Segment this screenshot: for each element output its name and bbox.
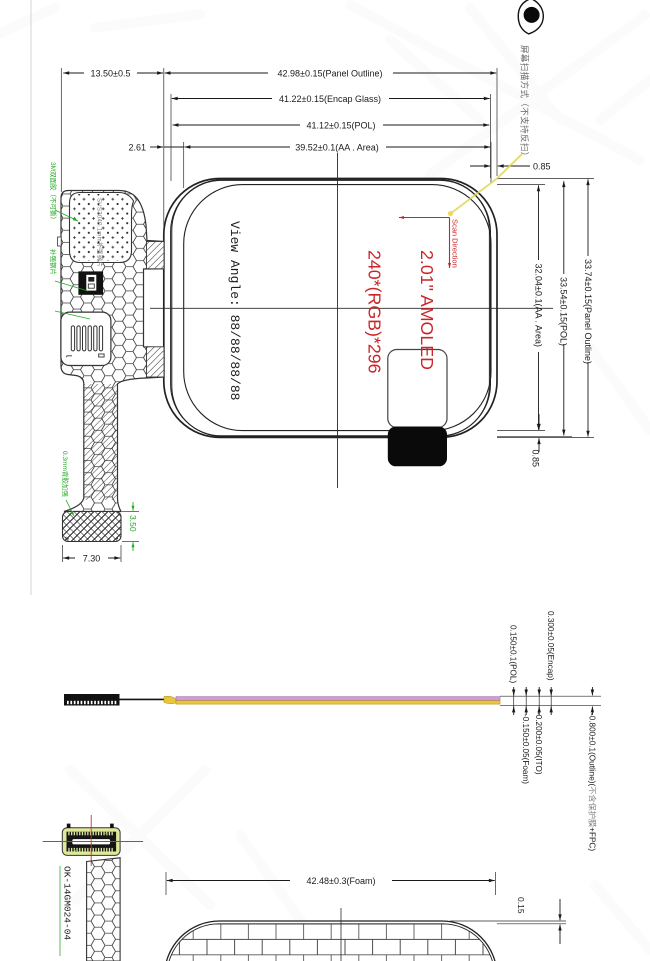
- svg-text:Scan Direction: Scan Direction: [451, 219, 460, 268]
- svg-text:屏幕扫描方式（不支持反扫）: 屏幕扫描方式（不支持反扫）: [520, 45, 530, 161]
- svg-text:0.300±0.05(Encap): 0.300±0.05(Encap): [546, 611, 555, 681]
- svg-text:SUS3040.1mm补强钢片: SUS3040.1mm补强钢片: [96, 198, 104, 267]
- svg-text:-0.150±0.05(Foam): -0.150±0.05(Foam): [521, 714, 530, 784]
- svg-text:View Angle: 88/88/88/88: View Angle: 88/88/88/88: [227, 221, 242, 400]
- svg-text:240*(RGB)*296: 240*(RGB)*296: [365, 250, 385, 374]
- svg-text:33.74±0.15(Panel Outline): 33.74±0.15(Panel Outline): [583, 259, 593, 364]
- svg-text:2.01" AMOLED: 2.01" AMOLED: [417, 250, 437, 370]
- svg-text:3M双面胶（不可撕）: 3M双面胶（不可撕）: [49, 162, 58, 223]
- svg-text:42.98±0.15(Panel Outline): 42.98±0.15(Panel Outline): [277, 69, 382, 79]
- svg-text:33.54±0.15(POL): 33.54±0.15(POL): [559, 277, 569, 346]
- svg-text:32.04±0.1(AA . Area): 32.04±0.1(AA . Area): [533, 264, 543, 348]
- svg-text:41.12±0.15(POL): 41.12±0.15(POL): [307, 121, 376, 131]
- svg-text:13.50±0.5: 13.50±0.5: [91, 69, 131, 79]
- svg-text:39.52±0.1(AA . Area): 39.52±0.1(AA . Area): [295, 143, 379, 153]
- svg-text:0.150±0.1(POL): 0.150±0.1(POL): [509, 625, 518, 683]
- svg-text:41.22±0.15(Encap Glass): 41.22±0.15(Encap Glass): [279, 94, 381, 104]
- svg-text:补强钢片: 补强钢片: [49, 249, 58, 275]
- svg-text:3.50: 3.50: [128, 515, 138, 532]
- svg-text:-0.800±0.1(Outline)(不含保护膜+FPC): -0.800±0.1(Outline)(不含保护膜+FPC): [587, 713, 597, 851]
- svg-text:0.3mm背胶加强: 0.3mm背胶加强: [61, 451, 70, 497]
- svg-text:42.48±0.3(Foam): 42.48±0.3(Foam): [307, 876, 376, 886]
- svg-text:2.61: 2.61: [128, 143, 146, 153]
- svg-text:OK-14GM024-04: OK-14GM024-04: [62, 866, 73, 940]
- svg-text:7.30: 7.30: [83, 554, 101, 564]
- svg-text:0.15: 0.15: [516, 897, 526, 914]
- svg-text:0.85: 0.85: [531, 450, 541, 468]
- svg-text:0.85: 0.85: [533, 162, 551, 172]
- svg-text:-0.200±0.05(ITO): -0.200±0.05(ITO): [534, 712, 543, 775]
